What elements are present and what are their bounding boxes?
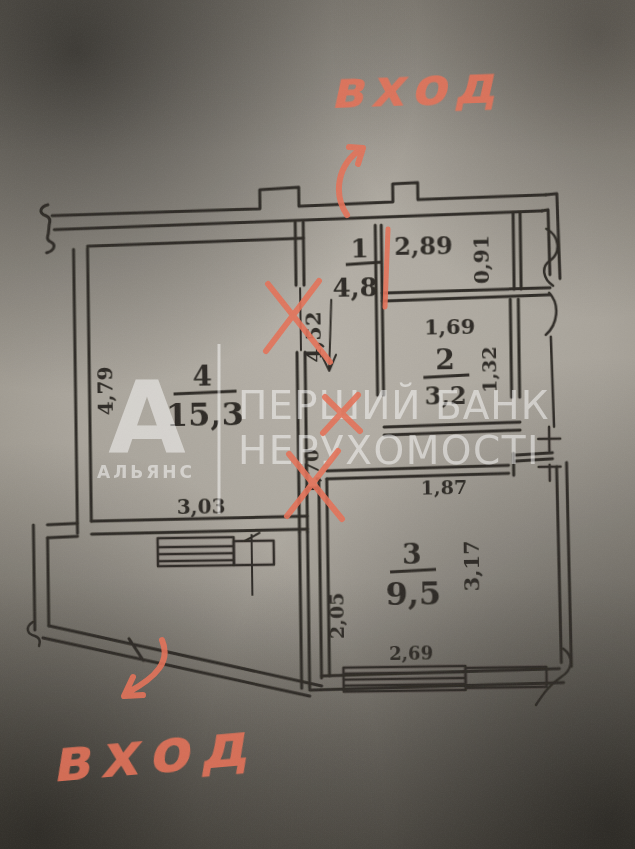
floor-plan-canvas: 1 4,8 2,89 0,91 1,69 2 3,2 1,32 4,52 1,7… <box>0 0 635 849</box>
paper-grain-overlay <box>0 0 635 849</box>
floor-plan-photo: 1 4,8 2,89 0,91 1,69 2 3,2 1,32 4,52 1,7… <box>0 0 635 849</box>
